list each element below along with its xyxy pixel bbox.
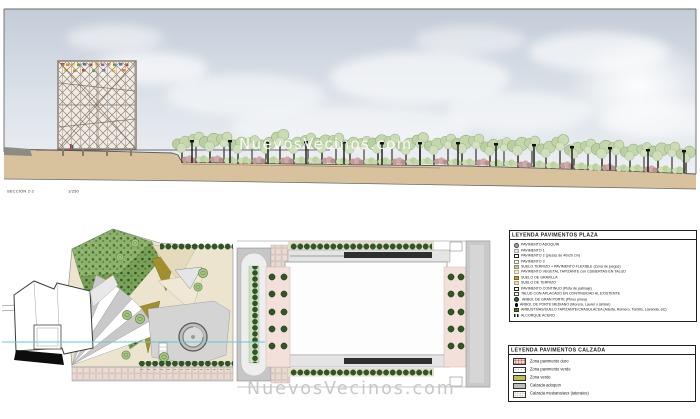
- park-block: [67, 229, 233, 381]
- swatch-pavimento-1: [514, 249, 519, 253]
- section-caption: SECCIÓN 2-2 1/250: [7, 189, 85, 195]
- fountain: [179, 323, 207, 351]
- swatch-arbol-mediano: [515, 303, 518, 306]
- swatch-adoquin: [514, 243, 519, 248]
- swatch-suelo-terrizo-flexible: [514, 265, 519, 269]
- building-shadow-band: [14, 350, 64, 365]
- legend-item: Calzada adoquín: [513, 382, 693, 390]
- plaza-court: [285, 262, 447, 355]
- corner-kiosk-top: [450, 242, 462, 251]
- canopy-bar-bottom: [344, 358, 432, 364]
- swatch-alcorque: [514, 314, 519, 317]
- legend-plaza-title: LEYENDA PAVIMENTOS PLAZA: [510, 231, 696, 240]
- figure-red: [70, 144, 72, 149]
- watermark-bottom: NuevosVecinos.com: [247, 379, 456, 399]
- canopy-bar-top: [344, 252, 432, 258]
- swatch-zona-verde: [513, 375, 526, 382]
- watermark-top: NuevosVecinos.com: [239, 135, 413, 153]
- park-top-tree-row: [160, 242, 233, 250]
- swatch-pavimento-3: [514, 260, 519, 264]
- colonnade-left-strip: [266, 267, 290, 367]
- swatch-vegetal-tapizante: [514, 270, 519, 274]
- legend-item: Zona pavimento duro: [513, 358, 693, 366]
- legend-item: Calzada mediana/aux (laterales): [513, 390, 693, 398]
- legend-item: Zona verde: [513, 374, 693, 382]
- park-bottom-tree-row: [138, 361, 233, 370]
- swatch-calzada-aux: [513, 391, 526, 398]
- swatch-terrizo: [514, 281, 519, 285]
- swatch-calzada-adoquin: [513, 383, 526, 390]
- swatch-talud: [514, 292, 519, 296]
- swatch-zona-pav-verde: [513, 367, 526, 374]
- median-trees: [249, 266, 259, 363]
- section-label: SECCIÓN 2-2: [7, 190, 34, 194]
- legend-calzada-title: LEYENDA PAVIMENTOS CALZADA: [509, 346, 695, 355]
- lattice-tower: [58, 61, 136, 156]
- swatch-zona-duro: [513, 358, 526, 365]
- swatch-continuo: [514, 287, 519, 291]
- legend-pavimentos-plaza: LEYENDA PAVIMENTOS PLAZA PAVIMENTO ADOQU…: [509, 230, 697, 322]
- swatch-gravilla: [514, 276, 519, 280]
- section-scale: 1/250: [68, 190, 79, 194]
- swatch-pavimento-2: [514, 254, 519, 258]
- courtyard: [34, 325, 61, 349]
- drawing-sheet: SECCIÓN 2-2 1/250: [0, 0, 700, 419]
- figure-blue: [72, 145, 73, 149]
- legend-item: ALCORQUE ACERO: [514, 313, 694, 318]
- colonnade-right-strip: [444, 267, 466, 367]
- legend-pavimentos-calzada: LEYENDA PAVIMENTOS CALZADA Zona paviment…: [508, 345, 696, 402]
- swatch-arbustivas: [514, 308, 519, 312]
- elevation-drawing: [0, 0, 700, 212]
- legend-item: Zona pavimento verde: [513, 366, 693, 374]
